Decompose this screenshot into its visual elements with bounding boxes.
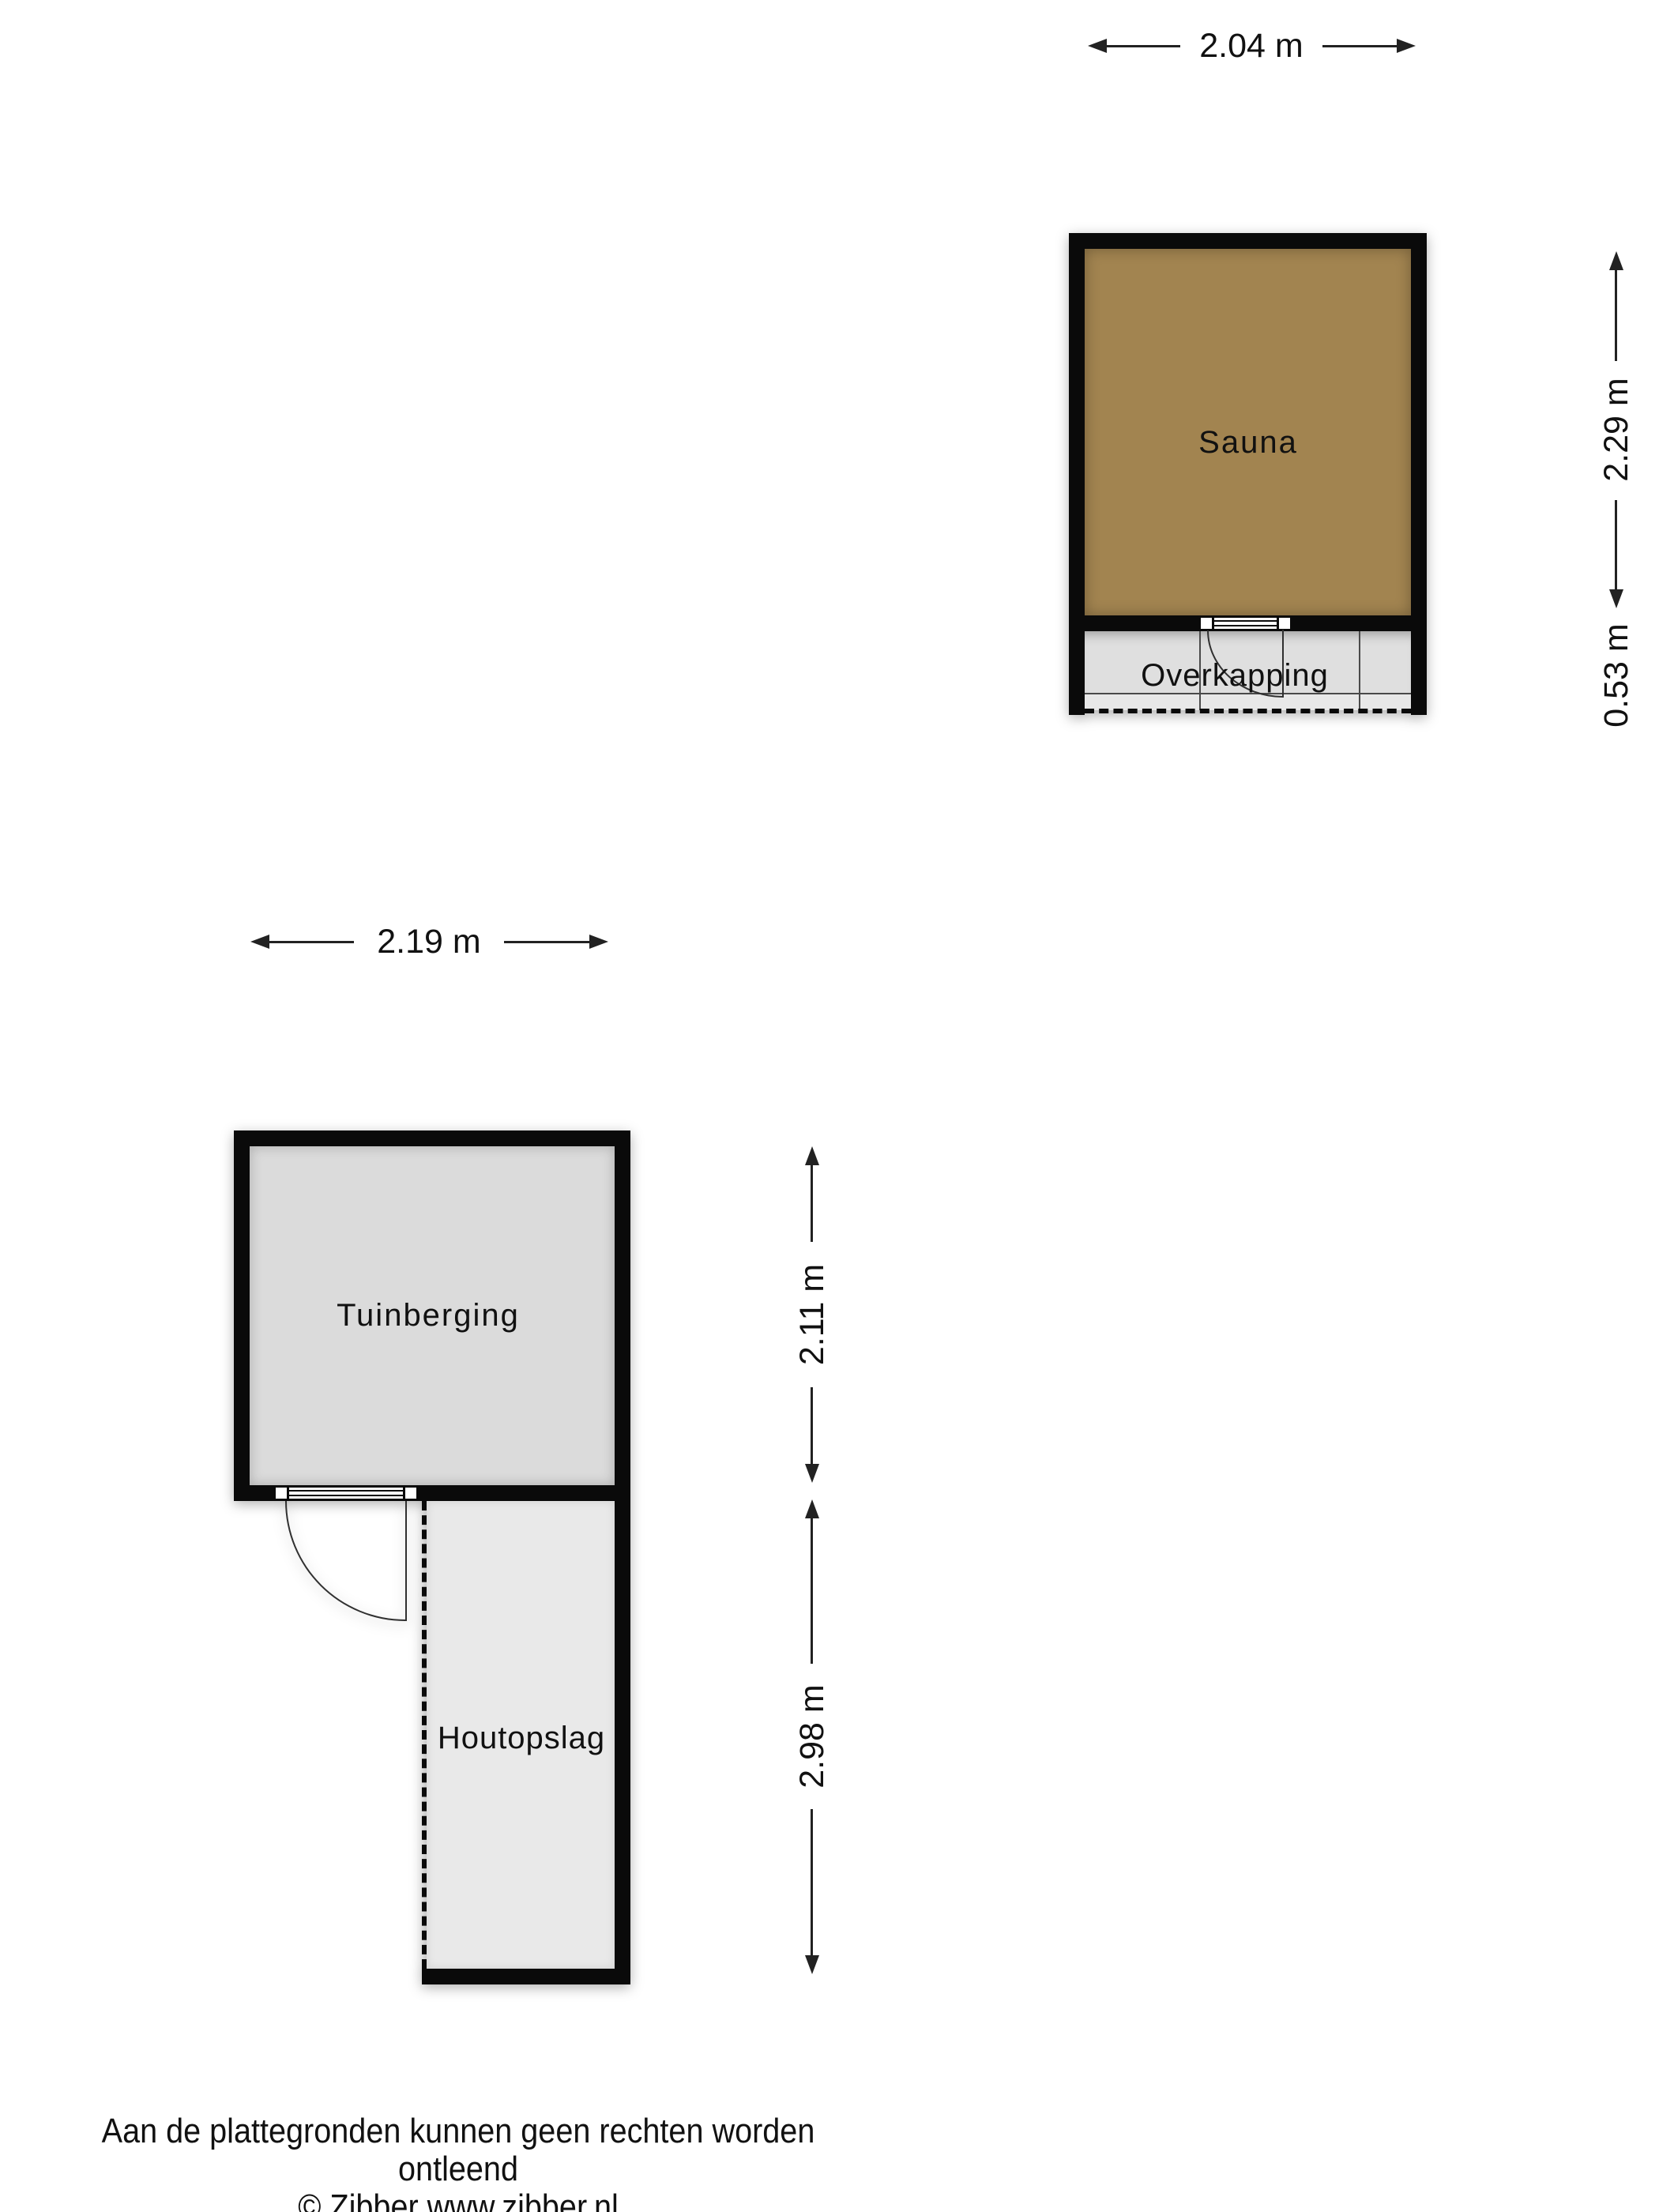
arrow-up-icon	[1609, 251, 1623, 270]
tuinberging-wall-bottom-right	[419, 1485, 630, 1501]
arrow-right-icon	[589, 935, 608, 949]
tuinberging-door-threshold	[273, 1485, 419, 1501]
tuinberging-wall-right	[615, 1130, 630, 1984]
overkapping-label: Overkapping	[1077, 656, 1393, 694]
houtopslag-wall-bottom	[422, 1969, 630, 1984]
arrow-up-icon	[805, 1146, 819, 1165]
door-jamb-left	[276, 1488, 289, 1499]
dimension-line	[1322, 45, 1406, 47]
dimension-value: 0.53 m	[1597, 557, 1635, 794]
door-threshold-line	[288, 1490, 404, 1492]
door-jamb-right	[403, 1488, 416, 1499]
tuinberging-door-leaf	[405, 1501, 407, 1621]
tuinberging-wall-left	[234, 1130, 250, 1501]
dimension-line	[811, 1809, 813, 1955]
tuinberging-unit	[0, 0, 1659, 2212]
dimension-line	[504, 941, 599, 943]
footer: Aan de plattegronden kunnen geen rechten…	[46, 2112, 871, 2212]
dimension-line	[811, 1387, 813, 1464]
footer-disclaimer: Aan de plattegronden kunnen geen rechten…	[46, 2112, 871, 2188]
floorplan-canvas: Sauna Overkapping Tuinberging Houtopslag…	[0, 0, 1659, 2212]
tuinberging-wall-top	[234, 1130, 630, 1146]
houtopslag-label: Houtopslag	[363, 1719, 679, 1757]
arrow-right-icon	[1397, 39, 1416, 53]
arrow-up-icon	[805, 1499, 819, 1518]
sauna-room-label: Sauna	[1090, 423, 1406, 461]
tuinberging-room-label: Tuinberging	[270, 1296, 586, 1334]
tuinberging-door-swing-arc	[285, 1501, 405, 1621]
arrow-down-icon	[805, 1955, 819, 1974]
footer-copyright: © Zibber www.zibber.nl	[46, 2188, 871, 2212]
tuinberging-wall-bottom-left	[234, 1485, 273, 1501]
arrow-down-icon	[805, 1464, 819, 1483]
door-threshold-line	[288, 1495, 404, 1496]
